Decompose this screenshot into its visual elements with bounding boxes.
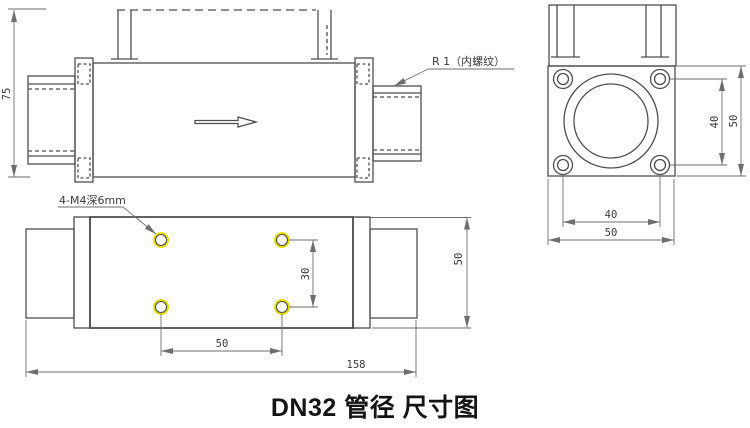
side-view: 75 R 1（内螺纹） bbox=[1, 9, 514, 182]
drawing-title: DN32 管径 尺寸图 bbox=[0, 388, 750, 424]
right-flange bbox=[353, 217, 370, 328]
right-thread-lines bbox=[373, 93, 421, 154]
technical-drawing: 75 R 1（内螺纹） 40 bbox=[0, 0, 750, 428]
housing-stub-posts bbox=[557, 5, 661, 57]
pipe-bore-circle bbox=[574, 84, 648, 158]
body-outline bbox=[90, 217, 353, 328]
dim-label-158: 158 bbox=[347, 359, 366, 371]
thread-note: R 1（内螺纹） bbox=[394, 54, 514, 86]
housing-left-post bbox=[118, 10, 131, 59]
bottom-view: 4-M4深6mm 30 50 50 158 bbox=[26, 194, 471, 377]
flow-direction-arrow bbox=[195, 117, 256, 127]
dim-hole-spacing-h-50: 50 bbox=[161, 314, 282, 356]
right-flange-hidden-hole-top bbox=[357, 64, 369, 84]
right-flange-hidden-hole-bottom bbox=[357, 158, 369, 178]
right-flange bbox=[355, 58, 373, 182]
left-flange-hidden-hole-bottom bbox=[78, 158, 90, 178]
left-thread-lines bbox=[28, 84, 75, 156]
dim-hole-spacing-v-30: 30 bbox=[289, 240, 318, 307]
thread-note-label: R 1（内螺纹） bbox=[432, 54, 505, 68]
dim-label-75: 75 bbox=[1, 88, 13, 101]
dim-label-40-v: 40 bbox=[709, 116, 721, 129]
left-pipe-nipple bbox=[26, 229, 74, 318]
dim-height-75: 75 bbox=[1, 9, 46, 177]
left-flange-hidden-hole-top bbox=[78, 64, 90, 84]
dim-label-30: 30 bbox=[300, 268, 312, 281]
housing-right-post bbox=[318, 10, 331, 59]
end-view: 40 50 40 50 bbox=[548, 5, 746, 245]
dim-label-50-bottom: 50 bbox=[216, 338, 229, 350]
right-thread-hidden-lines bbox=[373, 97, 421, 150]
dim-hole-spacing-v-40: 40 bbox=[670, 79, 727, 165]
left-thread-hidden-lines bbox=[28, 89, 75, 151]
dim-label-50-right: 50 bbox=[453, 253, 465, 266]
flange-bolt-holes bbox=[554, 70, 670, 175]
dim-label-50-width: 50 bbox=[605, 227, 618, 239]
dimension-drawing-page: 75 R 1（内螺纹） 40 bbox=[0, 0, 750, 428]
holes-note-label: 4-M4深6mm bbox=[59, 194, 126, 207]
left-flange bbox=[74, 217, 90, 328]
mounting-holes bbox=[154, 233, 289, 314]
dim-label-50-height: 50 bbox=[728, 115, 740, 128]
holes-note: 4-M4深6mm bbox=[58, 194, 156, 234]
right-pipe-nipple bbox=[370, 229, 417, 318]
dim-label-40-h: 40 bbox=[605, 209, 618, 221]
dim-overall-width-50: 50 bbox=[356, 218, 471, 329]
pipe-outer-circle bbox=[564, 74, 658, 168]
dim-hole-spacing-h-40: 40 bbox=[563, 174, 660, 227]
